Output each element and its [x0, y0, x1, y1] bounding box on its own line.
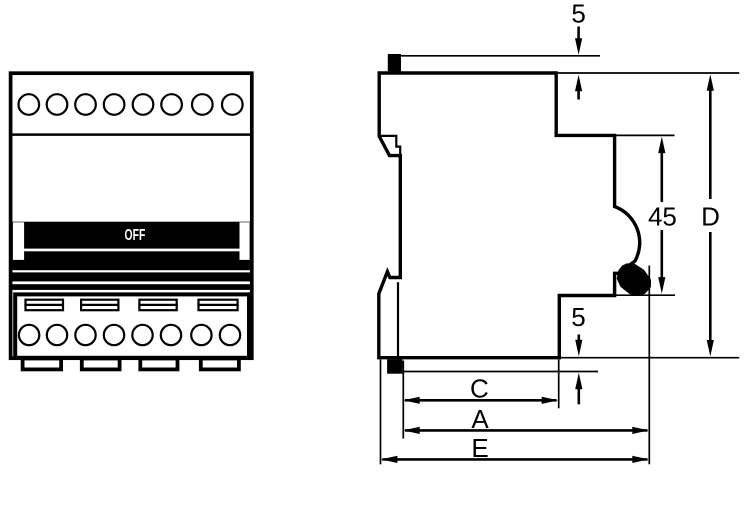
svg-text:C: C	[470, 373, 489, 403]
svg-text:5: 5	[571, 302, 585, 332]
svg-text:OFF: OFF	[125, 227, 146, 244]
svg-text:D: D	[701, 202, 720, 232]
svg-text:5: 5	[571, 0, 585, 28]
svg-text:45: 45	[648, 201, 677, 231]
